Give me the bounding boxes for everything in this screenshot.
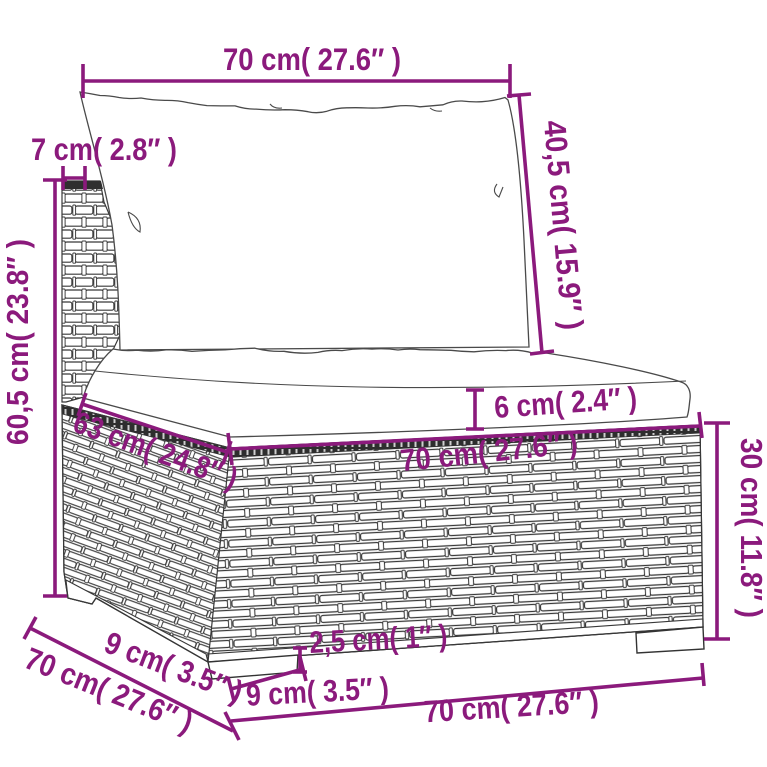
svg-text:9 cm( 3.5″ ): 9 cm( 3.5″ ): [245, 670, 390, 712]
svg-text:70 cm( 27.6″ ): 70 cm( 27.6″ ): [223, 41, 401, 77]
svg-text:2,5 cm( 1″ ): 2,5 cm( 1″ ): [309, 618, 449, 660]
svg-text:60,5 cm( 23.8″ ): 60,5 cm( 23.8″ ): [0, 239, 35, 445]
svg-text:7 cm( 2.8″ ): 7 cm( 2.8″ ): [31, 131, 177, 167]
svg-text:30 cm( 11.8″ ): 30 cm( 11.8″ ): [734, 438, 767, 618]
